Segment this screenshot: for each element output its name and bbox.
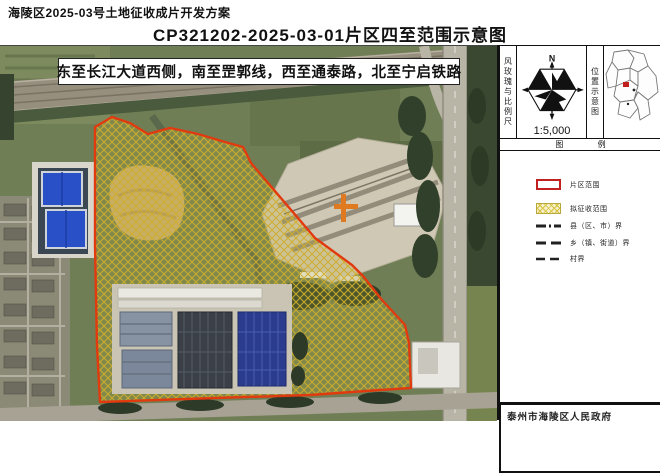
- location-panel-label: 位置示意图: [587, 46, 604, 138]
- legend-item-village-boundary: 村界: [536, 254, 585, 264]
- legend-item-county-boundary: 县（区、市）界: [536, 221, 623, 231]
- county-boundary-symbol: [536, 225, 561, 228]
- expropriation-hatch-symbol: [536, 203, 561, 214]
- windrose-panel: 风玫瑰与比例尺 N: [499, 45, 587, 139]
- document-title: 海陵区2025-03号土地征收成片开发方案: [8, 4, 231, 21]
- map-title: CP321202-2025-03-01片区四至范围示意图: [0, 21, 660, 46]
- boundary-note-text: 东至长江大道西侧，南至罡郭线，西至通泰路，北至宁启铁路: [57, 61, 462, 82]
- legend-header: 图 例: [499, 139, 660, 151]
- windrose-panel-label: 风玫瑰与比例尺: [500, 46, 517, 138]
- issuer-name: 泰州市海陵区人民政府: [507, 412, 612, 423]
- satellite-map-graphic: [0, 46, 497, 421]
- location-panel: 位置示意图: [587, 45, 660, 139]
- legend-item-parcel: 片区范围: [536, 179, 600, 190]
- map-scale: 1:5,000: [517, 125, 587, 137]
- header: 海陵区2025-03号土地征收成片开发方案 CP321202-2025-03-0…: [0, 0, 660, 45]
- legend-item-expropriation: 拟征收范围: [536, 203, 608, 214]
- satellite-map: 东至长江大道西侧，南至罡郭线，西至通泰路，北至宁启铁路: [0, 45, 497, 421]
- page-root: { "header": { "doc_title": "海陵区2025-03号土…: [0, 0, 660, 420]
- legend-item-town-boundary: 乡（镇、街道）界: [536, 238, 630, 248]
- wind-rose-icon: N: [517, 46, 587, 137]
- map-sidebar: 风玫瑰与比例尺 N: [497, 45, 660, 420]
- legend: 片区范围 拟征收范围 县（区、市）界 乡（镇、街道）界 村界: [499, 151, 660, 403]
- issuer-footer: 泰州市海陵区人民政府: [499, 403, 660, 473]
- location-inset-map: [604, 46, 660, 137]
- boundary-note-banner: 东至长江大道西侧，南至罡郭线，西至通泰路，北至宁启铁路: [58, 58, 460, 85]
- village-boundary-symbol: [536, 258, 561, 261]
- town-boundary-symbol: [536, 242, 561, 245]
- parcel-boundary-symbol: [536, 179, 561, 190]
